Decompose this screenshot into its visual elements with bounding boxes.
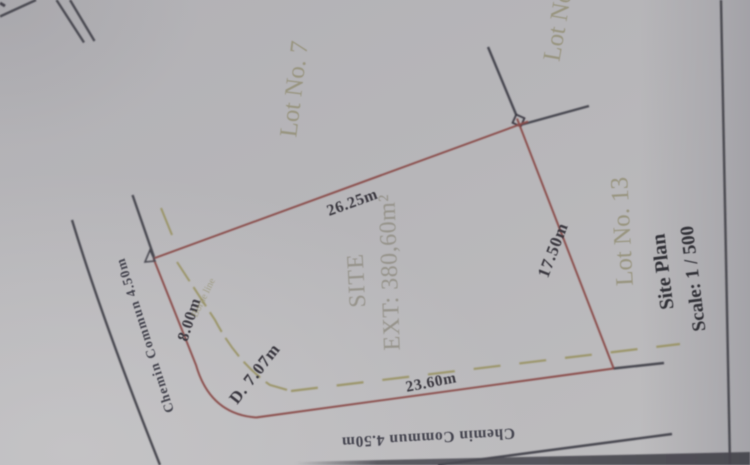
svg-text:EXT: 380,60m²: EXT: 380,60m² xyxy=(374,194,405,351)
svg-text:Lot No. 13: Lot No. 13 xyxy=(606,176,639,286)
svg-text:SITE: SITE xyxy=(343,252,372,308)
